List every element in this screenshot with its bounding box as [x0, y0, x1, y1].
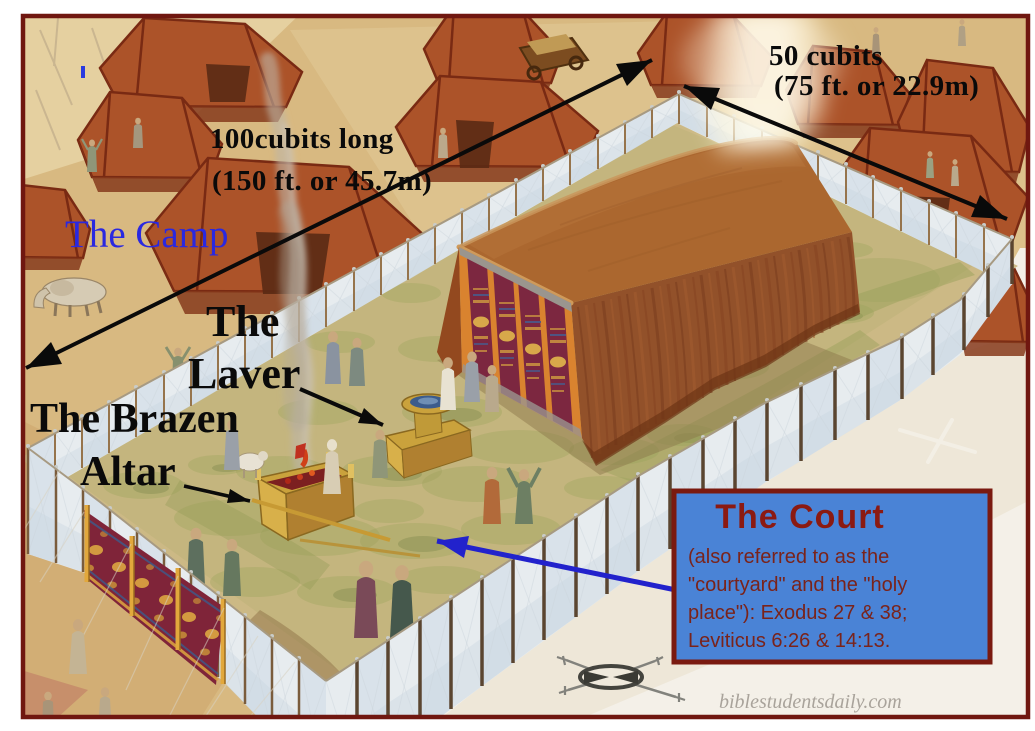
- svg-text:The Brazen: The Brazen: [30, 396, 239, 442]
- svg-text:(also referred to as the: (also referred to as the: [688, 546, 889, 568]
- svg-text:place"): Exodus 27 & 38;: place"): Exodus 27 & 38;: [688, 602, 907, 624]
- svg-text:(150 ft. or 45.7m): (150 ft. or 45.7m): [212, 165, 432, 197]
- svg-text:Altar: Altar: [80, 449, 176, 495]
- svg-text:"courtyard" and the "holy: "courtyard" and the "holy: [688, 574, 907, 596]
- svg-text:biblestudentsdaily.com: biblestudentsdaily.com: [719, 691, 902, 713]
- svg-text:The: The: [206, 297, 279, 346]
- svg-text:50 cubits: 50 cubits: [769, 40, 883, 72]
- svg-text:Leviticus 6:26 & 14:13.: Leviticus 6:26 & 14:13.: [688, 630, 890, 652]
- svg-text:Laver: Laver: [188, 349, 300, 398]
- svg-text:100cubits long: 100cubits long: [210, 123, 394, 155]
- svg-text:The Court: The Court: [715, 498, 885, 536]
- svg-text:(75 ft. or 22.9m): (75 ft. or 22.9m): [774, 70, 979, 102]
- svg-text:The Camp: The Camp: [65, 213, 229, 256]
